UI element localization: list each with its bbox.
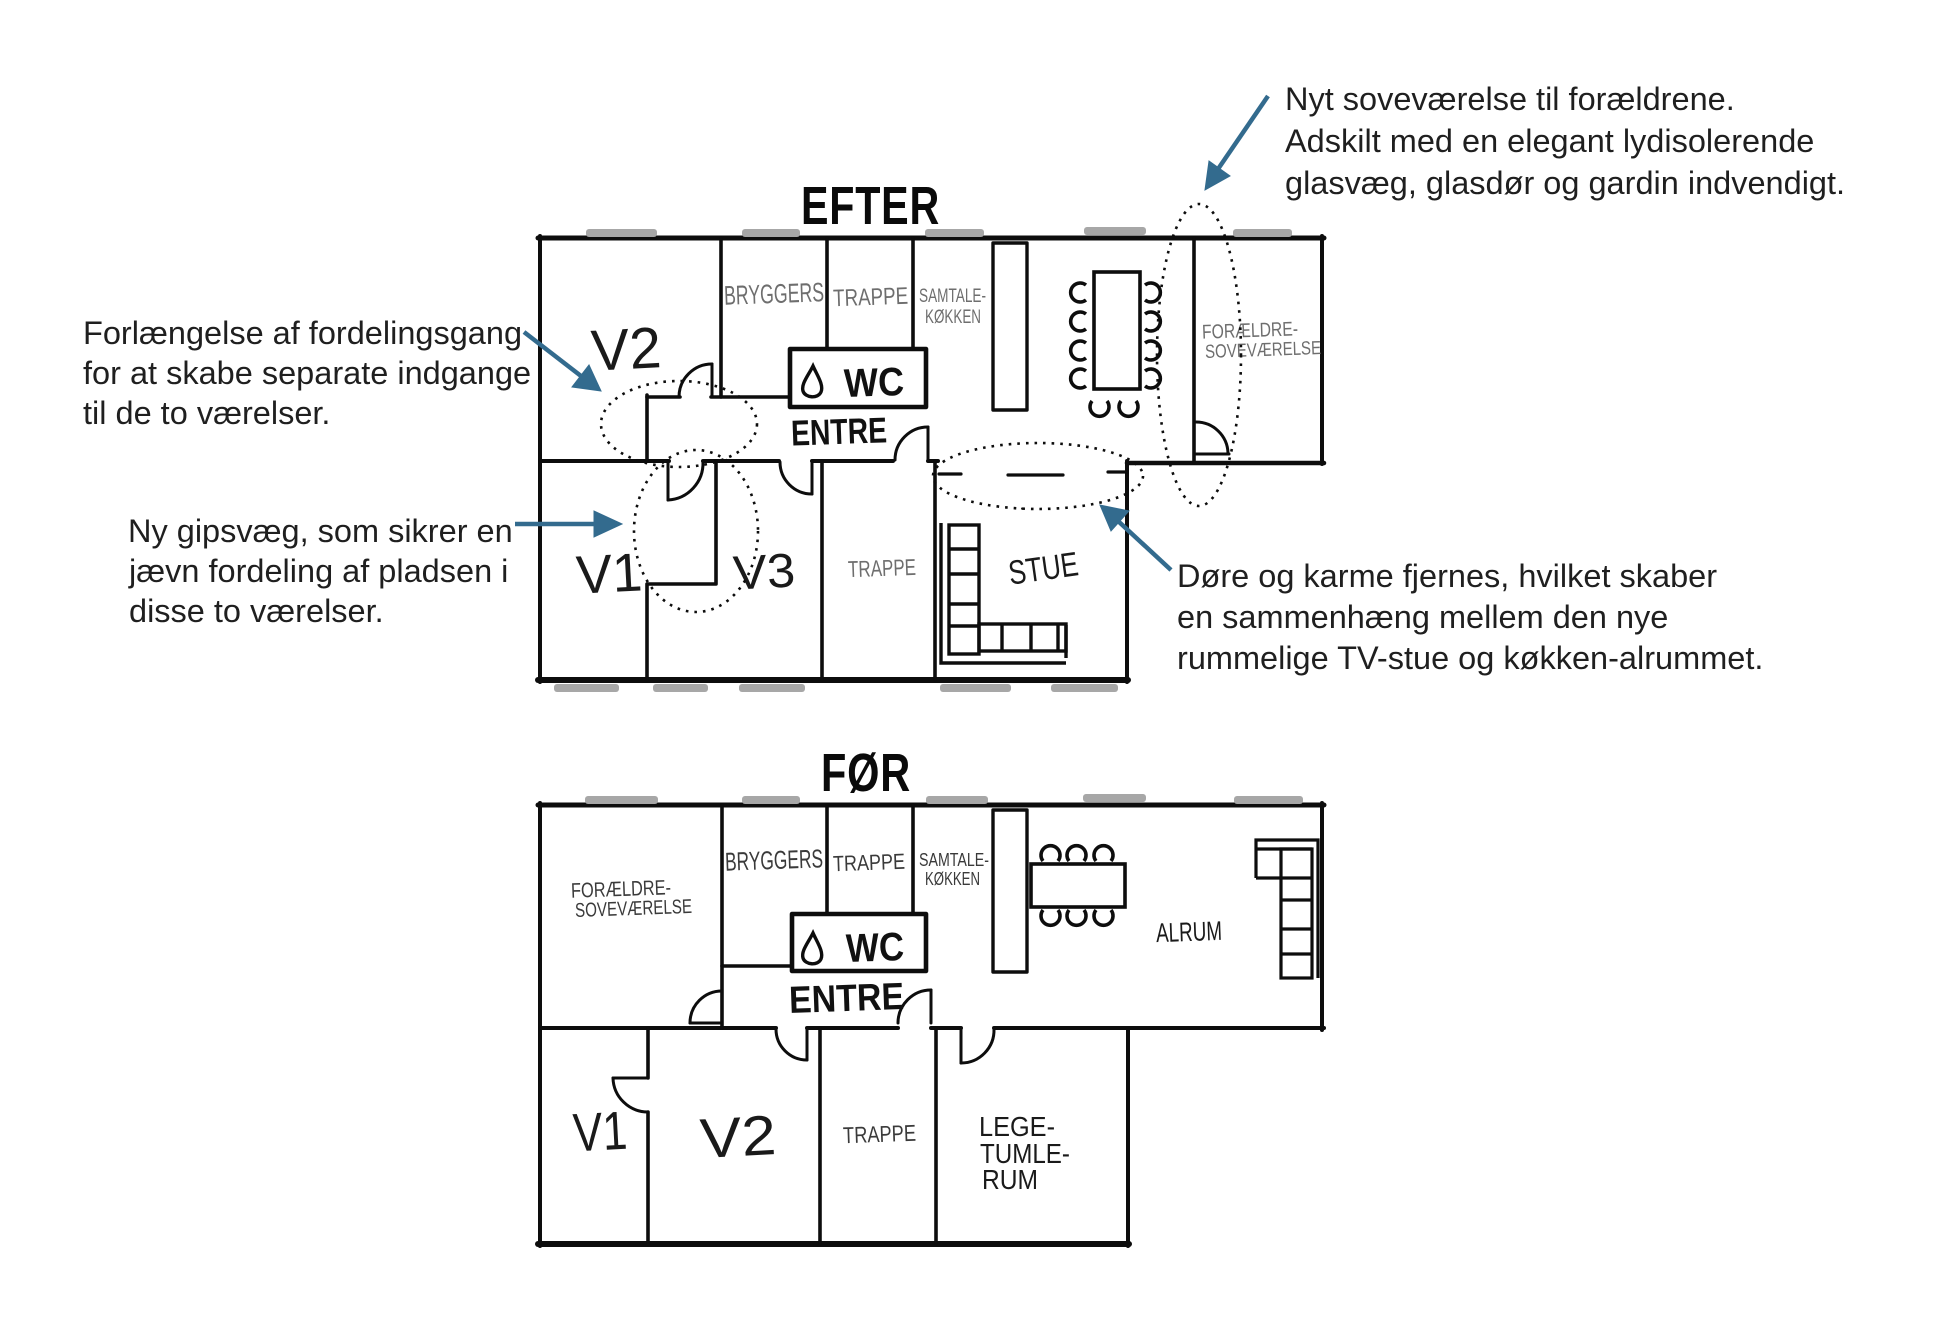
svg-text:for at skabe separate indgange: for at skabe separate indgange (83, 355, 531, 391)
svg-text:jævn fordeling af pladsen i: jævn fordeling af pladsen i (128, 553, 508, 589)
svg-text:BRYGGERS: BRYGGERS (725, 843, 824, 876)
svg-text:V1: V1 (572, 1101, 629, 1164)
svg-text:V2: V2 (698, 1103, 777, 1170)
svg-text:til de to værelser.: til de to værelser. (83, 395, 330, 431)
svg-text:SOVEVÆRELSE: SOVEVÆRELSE (1205, 338, 1322, 363)
svg-text:RUM: RUM (982, 1164, 1038, 1195)
svg-text:SAMTALE-: SAMTALE- (919, 850, 989, 870)
svg-text:rummelige TV-stue og køkken-al: rummelige TV-stue og køkken-alrummet. (1177, 640, 1763, 676)
svg-text:TRAPPE: TRAPPE (833, 849, 906, 876)
svg-text:Nyt soveværelse til forældrene: Nyt soveværelse til forældrene. (1285, 81, 1735, 117)
svg-text:Døre og karme fjernes, hvilket: Døre og karme fjernes, hvilket skaber (1177, 558, 1717, 594)
svg-text:en sammenhæng mellem den nye: en sammenhæng mellem den nye (1177, 599, 1668, 635)
svg-text:Forlængelse af fordelingsgang: Forlængelse af fordelingsgang (83, 315, 522, 351)
svg-text:KØKKEN: KØKKEN (925, 869, 980, 889)
svg-text:TRAPPE: TRAPPE (833, 283, 909, 313)
svg-text:disse to værelser.: disse to værelser. (129, 593, 384, 629)
svg-text:KØKKEN: KØKKEN (925, 307, 981, 328)
svg-text:BRYGGERS: BRYGGERS (724, 277, 825, 310)
svg-text:glasvæg, glasdør og gardin ind: glasvæg, glasdør og gardin indvendigt. (1285, 165, 1845, 201)
svg-text:Ny gipsvæg, som sikrer en: Ny gipsvæg, som sikrer en (128, 513, 513, 549)
svg-text:FØR: FØR (821, 743, 911, 803)
svg-text:Adskilt med en elegant lydisol: Adskilt med en elegant lydisolerende (1285, 123, 1814, 159)
svg-text:EFTER: EFTER (801, 176, 940, 236)
svg-text:SAMTALE-: SAMTALE- (919, 286, 986, 307)
svg-text:V1: V1 (575, 542, 644, 605)
svg-text:TRAPPE: TRAPPE (843, 1120, 917, 1149)
svg-text:ENTRE: ENTRE (790, 409, 887, 453)
svg-text:TRAPPE: TRAPPE (848, 554, 917, 582)
svg-text:SOVEVÆRELSE: SOVEVÆRELSE (575, 896, 693, 922)
svg-text:ENTRE: ENTRE (788, 976, 904, 1022)
svg-text:ALRUM: ALRUM (1155, 916, 1222, 948)
svg-text:V2: V2 (590, 315, 663, 384)
svg-text:V3: V3 (732, 544, 797, 600)
svg-text:WC: WC (845, 925, 905, 971)
svg-text:WC: WC (843, 360, 904, 406)
